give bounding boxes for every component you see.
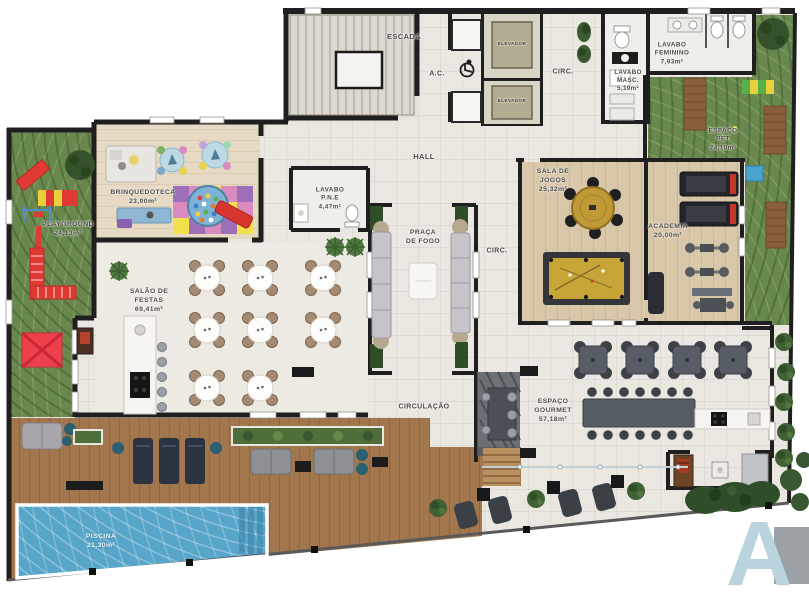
playground-swing (22, 206, 52, 222)
label-circulacao: CIRCULAÇÃO (398, 402, 449, 411)
label-lavabo-masc: LAVABO MASC. 5,19m² (614, 69, 642, 93)
garden-deck-ramp (766, 202, 786, 248)
tree (757, 18, 789, 50)
label-salao-de-festas: SALÃO DE FESTAS 69,41m² (130, 288, 168, 314)
party-tables (190, 261, 341, 406)
ottoman (356, 463, 368, 475)
label-hall: HALL (413, 152, 435, 162)
deck-furniture (22, 423, 520, 490)
ottoman (62, 436, 72, 446)
ottoman (356, 449, 368, 461)
logo-letter-a: A (726, 508, 792, 600)
ottoman (112, 442, 124, 454)
playground-slide (16, 159, 50, 190)
treadmill (680, 202, 738, 226)
gym-equipment (648, 172, 738, 314)
elevator-lobby (452, 20, 481, 122)
kids-table (157, 146, 187, 175)
coffee-table (66, 481, 103, 490)
side-table (547, 481, 560, 494)
kitchen-island (124, 316, 167, 414)
stairs (290, 15, 414, 115)
exercise-mat (648, 272, 664, 314)
label-espaco-pet: ESPAÇO PET 24,10m² (709, 128, 738, 153)
side-table (477, 488, 490, 501)
stair-landing (336, 52, 382, 88)
pet-tunnel (742, 80, 774, 94)
churrasqueira (77, 328, 93, 354)
buffet-table (292, 367, 314, 377)
label-brinquedoteca: BRINQUEDOTECA 23,00m² (110, 189, 175, 207)
floor-plan: ESCADA A.C. ELEVADOR ELEVADOR CIRC. LAVA… (0, 0, 809, 600)
poker-table (564, 177, 623, 239)
label-playground: PLAYGROUND 24,13m² (42, 221, 94, 239)
floor-plan-graphic (0, 0, 809, 600)
lounger (159, 438, 179, 484)
pool-details (17, 505, 267, 578)
lounger (185, 438, 205, 484)
pet-toy (746, 166, 763, 181)
label-elevador-2: ELEVADOR (498, 98, 526, 104)
gourmet-counter (695, 409, 770, 429)
label-elevador-1: ELEVADOR (498, 41, 526, 47)
planter (456, 342, 468, 362)
brinquedoteca-items (106, 141, 254, 234)
label-praca-de-fogo: PRAÇA DE FOGO (406, 229, 440, 247)
label-sala-de-jogos: SALA DE JOGOS 25,32m² (537, 168, 569, 194)
cooktop (711, 412, 727, 426)
label-academia: ACADEMIA 20,00m² (648, 223, 688, 241)
label-lavabo-pne: LAVABO P.N.E 4,47m² (316, 187, 344, 212)
label-ac: A.C. (429, 69, 445, 78)
multi-gym (692, 288, 734, 312)
weight-bench (685, 267, 729, 277)
side-table (295, 461, 311, 472)
gourmet-long-table (583, 387, 695, 440)
armchair (487, 495, 513, 525)
label-lavabo-feminino: LAVABO FEMININO 7,93m² (655, 42, 689, 67)
ottoman (210, 442, 222, 454)
planter (74, 430, 102, 444)
label-espaco-gourmet: ESPAÇO GOURMET 57,18m² (534, 398, 572, 424)
toy-cart (117, 219, 132, 228)
billiard-table (543, 252, 630, 305)
playground-bars (38, 190, 78, 206)
armchair (453, 500, 479, 530)
gourmet-bar (456, 342, 538, 458)
side-table (611, 475, 624, 488)
label-circ-top: CIRC. (552, 67, 573, 76)
label-piscina: PISCINA 21,30m² (86, 533, 116, 551)
sofa (372, 232, 391, 338)
circ-plants (577, 22, 591, 63)
gourmet-tables (574, 341, 752, 379)
side-table (372, 457, 388, 467)
elevators (484, 14, 540, 124)
lounger (133, 438, 153, 484)
pool-edge (17, 505, 267, 578)
kids-table (199, 141, 231, 170)
tree (65, 150, 95, 180)
grill-station (674, 454, 768, 487)
cooktop (130, 372, 150, 398)
label-circ-mid: CIRC. (486, 246, 507, 255)
playground-items (16, 150, 95, 367)
playhouse (22, 333, 62, 367)
label-escada: ESCADA (387, 32, 421, 42)
wheelchair-icon (461, 60, 474, 77)
weight-bench (685, 243, 729, 253)
treadmill (680, 172, 738, 196)
armchair (557, 488, 583, 518)
